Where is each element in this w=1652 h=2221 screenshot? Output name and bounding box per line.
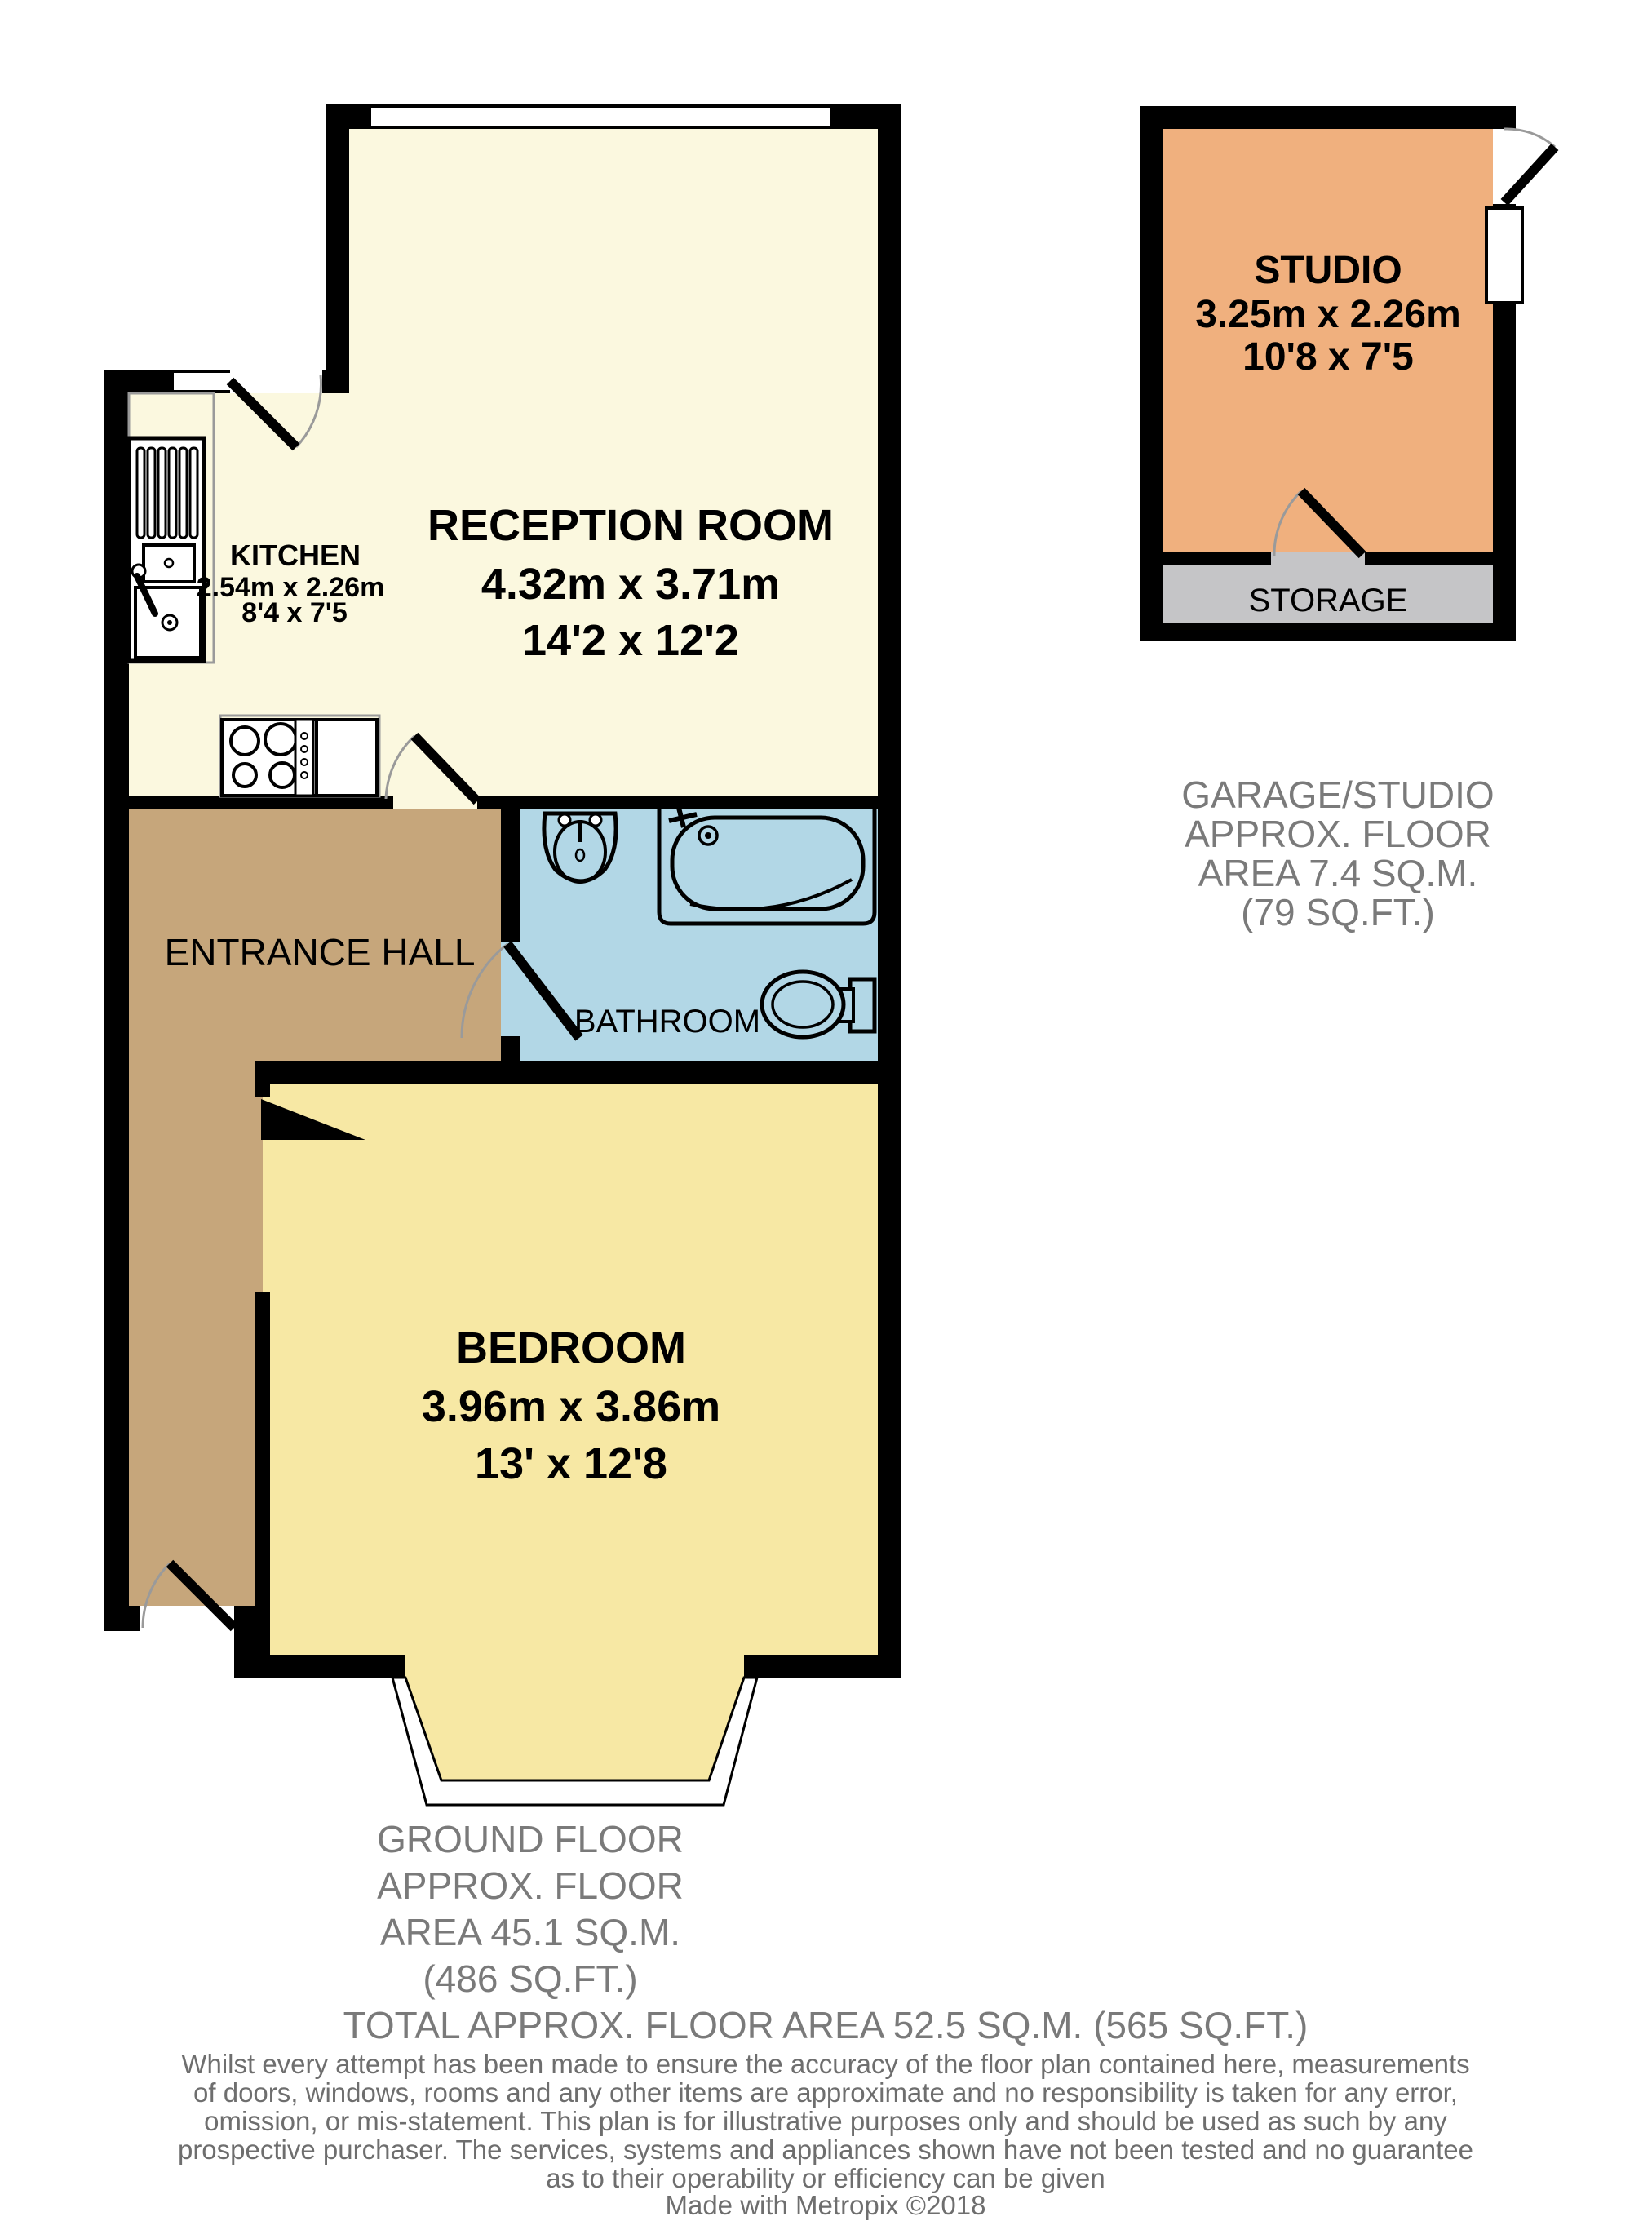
disclaimer-line5: as to their operability or efficiency ca…	[546, 2163, 1105, 2193]
garage-caption-line1: GARAGE/STUDIO	[1181, 774, 1494, 816]
entrance-hall-label: ENTRANCE HALL	[165, 931, 476, 973]
disclaimer: Whilst every attempt has been made to en…	[178, 2049, 1473, 2220]
hob-dial-strip	[295, 720, 313, 796]
storage-door-opening	[1271, 552, 1365, 565]
ground-caption-line4: (486 SQ.FT.)	[423, 1957, 637, 2000]
reception-room-floor	[349, 129, 878, 796]
bedroom-label: BEDROOM	[456, 1323, 686, 1372]
hob	[222, 720, 377, 796]
garage-caption-line4: (79 SQ.FT.)	[1241, 891, 1435, 933]
sink-small	[144, 545, 194, 582]
disclaimer-line1: Whilst every attempt has been made to en…	[181, 2049, 1469, 2079]
disclaimer-line3: omission, or mis-statement. This plan is…	[204, 2106, 1447, 2136]
reception-hall-opening	[393, 796, 477, 809]
bathtub	[659, 808, 875, 924]
ground-caption-line1: GROUND FLOOR	[377, 1818, 684, 1860]
total-area-line: TOTAL APPROX. FLOOR AREA 52.5 SQ.M. (565…	[343, 2004, 1309, 2046]
floorplan-drawing: RECEPTION ROOM 4.32m x 3.71m 14'2 x 12'2…	[0, 0, 1652, 2221]
metropix-credit: Made with Metropix ©2018	[665, 2190, 985, 2220]
reception-metric: 4.32m x 3.71m	[481, 560, 780, 609]
wash-basin	[544, 813, 616, 882]
toilet	[762, 972, 875, 1037]
kitchen-counter	[317, 720, 377, 796]
bedroom-imperial: 13' x 12'8	[475, 1439, 667, 1488]
kitchen-label: KITCHEN	[230, 539, 361, 572]
garage-caption-line3: AREA 7.4 SQ.M.	[1198, 852, 1478, 894]
entrance-hall-corridor-floor	[129, 1061, 263, 1606]
reception-label: RECEPTION ROOM	[427, 501, 834, 550]
ground-caption-line2: APPROX. FLOOR	[377, 1864, 684, 1907]
garage-caption-line2: APPROX. FLOOR	[1185, 813, 1491, 855]
studio-metric: 3.25m x 2.26m	[1195, 293, 1461, 336]
kitchen-window	[174, 370, 230, 393]
disclaimer-line2: of doors, windows, rooms and any other i…	[193, 2077, 1458, 2108]
floorplan-page: RECEPTION ROOM 4.32m x 3.71m 14'2 x 12'2…	[0, 0, 1652, 2221]
kitchen-sink-unit	[129, 438, 204, 661]
storage-label: STORAGE	[1249, 583, 1408, 618]
bathroom-label: BATHROOM	[574, 1004, 760, 1040]
disclaimer-line4: prospective purchaser. The services, sys…	[178, 2135, 1473, 2165]
reception-window	[371, 104, 830, 129]
reception-imperial: 14'2 x 12'2	[522, 616, 739, 665]
ground-caption-line3: AREA 45.1 SQ.M.	[380, 1911, 680, 1953]
studio-label: STUDIO	[1254, 249, 1402, 292]
kitchen-imperial: 8'4 x 7'5	[241, 597, 348, 628]
bedroom-metric: 3.96m x 3.86m	[422, 1382, 720, 1431]
studio-imperial: 10'8 x 7'5	[1242, 335, 1414, 379]
studio-window	[1486, 208, 1522, 303]
